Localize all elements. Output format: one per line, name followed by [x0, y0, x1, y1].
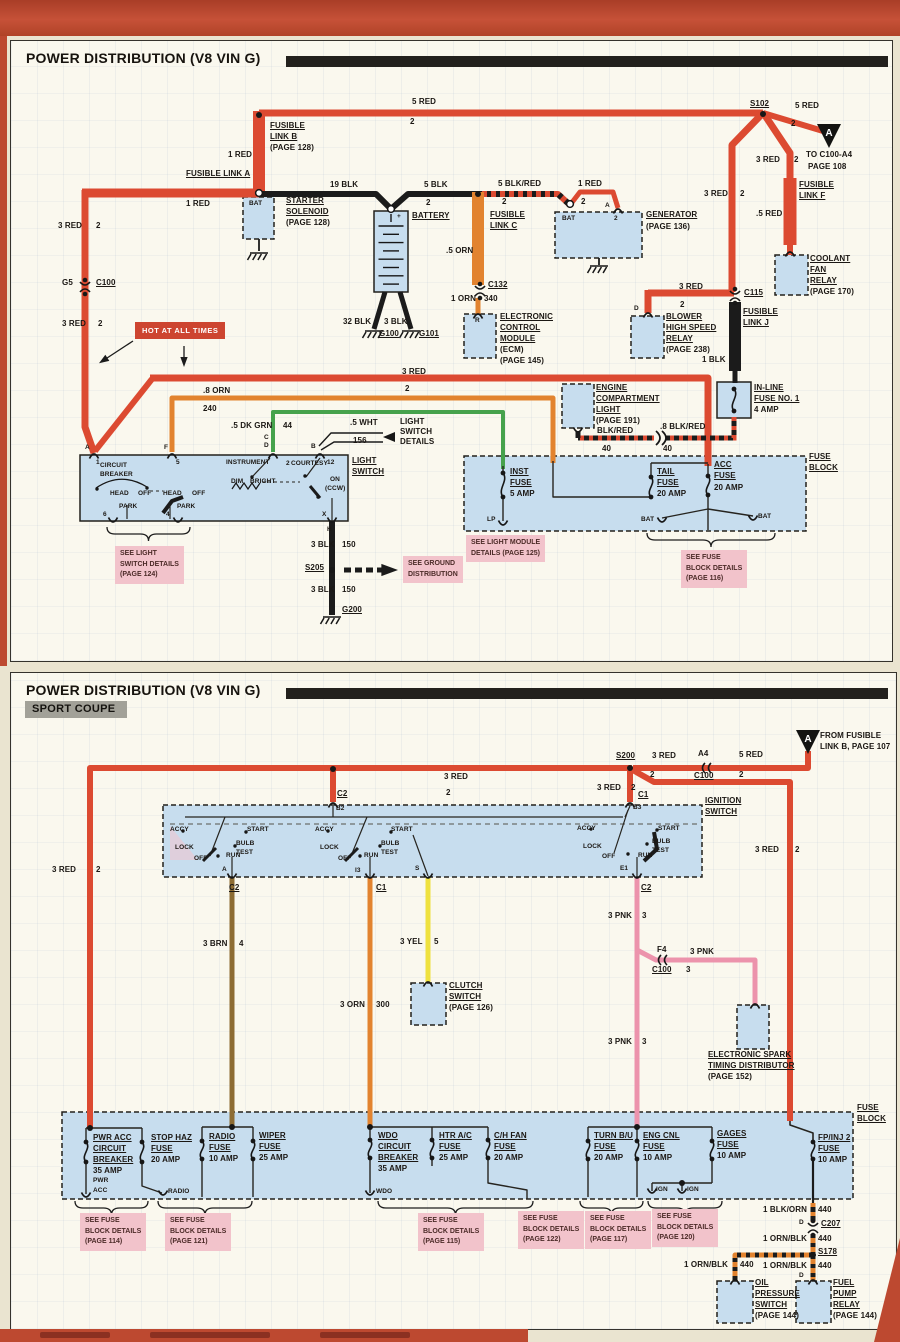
label-3-brn: 3 BRN — [203, 940, 228, 948]
wire-1red-gen — [570, 192, 618, 208]
label-fuse: FUSE — [439, 1143, 461, 1151]
label-3-orn: 3 ORN — [340, 1001, 365, 1009]
junction-dot — [760, 111, 766, 117]
label-fuel: FUEL — [833, 1279, 854, 1287]
label-5-orn: .5 ORN — [446, 247, 473, 255]
label-8-orn: .8 ORN — [203, 387, 230, 395]
label-440: 440 — [818, 1262, 832, 1270]
label-switch: SWITCH — [400, 428, 432, 436]
label-bat: BAT — [562, 216, 575, 223]
connector-symbol — [808, 1219, 818, 1238]
label-3-red: 3 RED — [62, 320, 86, 328]
label-electronic-spark: ELECTRONIC SPARK — [708, 1051, 791, 1059]
label-oil: OIL — [755, 1279, 769, 1287]
label-start: START — [247, 827, 269, 834]
label-breaker: BREAKER — [93, 1156, 133, 1164]
hot-arrow-1 — [104, 341, 133, 360]
label-htr-a-c: HTR A/C — [439, 1132, 472, 1140]
label-1-red: 1 RED — [578, 180, 602, 188]
junction-dot — [679, 1180, 685, 1186]
label-c132: C132 — [488, 281, 508, 289]
label-d: D — [264, 443, 269, 450]
label-relay: RELAY — [833, 1301, 860, 1309]
label-c1: C1 — [638, 791, 648, 799]
wire-left-3red — [85, 190, 94, 453]
note-fb2-115-line: BLOCK DETAILS — [423, 1227, 479, 1238]
label-fusible: FUSIBLE — [270, 122, 305, 130]
label-2: 2 — [581, 198, 586, 206]
flag-connector: A — [817, 124, 841, 148]
label-breaker: BREAKER — [100, 472, 133, 479]
label-bright: BRIGHT — [250, 479, 276, 486]
label-accy: ACCY — [170, 827, 189, 834]
label-3-blk: 3 BLK — [384, 318, 408, 326]
note-light-module-details: SEE LIGHT MODULEDETAILS (PAGE 125) — [466, 535, 545, 562]
label-25-amp: 25 AMP — [259, 1154, 288, 1162]
wire-5wht-b — [321, 442, 383, 450]
brace-fuse-block-1 — [647, 533, 775, 547]
label-fusible: FUSIBLE — [743, 308, 778, 316]
label-x: X — [322, 512, 326, 519]
label-instrument: INSTRUMENT — [226, 460, 270, 467]
hot-arrow-2-arrowhead — [180, 357, 187, 367]
label-blower: BLOWER — [666, 313, 702, 321]
note-light-switch-details-line: (PAGE 124) — [120, 570, 179, 581]
label-s205: S205 — [305, 564, 324, 572]
p2-pnk-branch — [637, 950, 755, 1005]
wire-5wht-a — [319, 433, 383, 446]
label-c207: C207 — [821, 1220, 841, 1228]
contact-dot — [358, 854, 361, 857]
label-eng-cnl: ENG CNL — [643, 1132, 680, 1140]
label-3-red: 3 RED — [402, 368, 426, 376]
label-lock: LOCK — [583, 844, 602, 851]
label-2: 2 — [98, 320, 103, 328]
label-a: A — [85, 445, 90, 452]
label-turn-b-u: TURN B/U — [594, 1132, 633, 1140]
label-35-amp: 35 AMP — [93, 1167, 122, 1175]
label-3-pnk: 3 PNK — [608, 1038, 632, 1046]
label-lock: LOCK — [175, 845, 194, 852]
label-fan: FAN — [810, 266, 826, 274]
label-tail: TAIL — [657, 468, 675, 476]
label-bulb: BULB — [381, 841, 399, 848]
label-19-blk: 19 BLK — [330, 181, 358, 189]
label-block: BLOCK — [857, 1115, 886, 1123]
label-ignition: IGNITION — [705, 797, 741, 805]
wire-5blk — [391, 194, 478, 209]
label-pwr-acc: PWR ACC — [93, 1134, 132, 1142]
label-20-amp: 20 AMP — [594, 1154, 623, 1162]
label-d: D — [799, 1220, 804, 1227]
label-control: CONTROL — [500, 324, 540, 332]
label-4: 4 — [239, 940, 244, 948]
label-2: 2 — [502, 198, 507, 206]
detail-arrow — [383, 432, 395, 442]
note-light-switch-details-line: SEE LIGHT — [120, 549, 179, 560]
label-fuse: FUSE — [151, 1145, 173, 1153]
label-details: DETAILS — [400, 438, 434, 446]
page-edge-bottom — [0, 1329, 528, 1342]
label-2: 2 — [680, 301, 685, 309]
label-3-red: 3 RED — [52, 866, 76, 874]
clutch-switch-box — [411, 983, 446, 1025]
label-page-170: (PAGE 170) — [810, 288, 854, 296]
page-edge-top — [0, 0, 900, 36]
note-light-switch-details: SEE LIGHTSWITCH DETAILS(PAGE 124) — [115, 546, 184, 584]
label-off: OFF — [138, 491, 151, 498]
label-fp-inj-2: FP/INJ 2 — [818, 1134, 850, 1142]
title-bar-bottom — [286, 688, 888, 699]
label-page-128: (PAGE 128) — [286, 219, 330, 227]
sport-coupe-badge: SPORT COUPE — [25, 701, 127, 718]
label-300: 300 — [376, 1001, 390, 1009]
label-240: 240 — [203, 405, 217, 413]
label-10-amp: 10 AMP — [643, 1154, 672, 1162]
label-page-128: (PAGE 128) — [270, 144, 314, 152]
label-10-amp: 10 AMP — [209, 1155, 238, 1163]
label-wiper: WIPER — [259, 1132, 286, 1140]
label-1-blk: 1 BLK — [702, 356, 726, 364]
label-4-amp: 4 AMP — [754, 406, 779, 414]
label-coolant: COOLANT — [810, 255, 850, 263]
label-to-c100-a4: TO C100-A4 — [806, 151, 852, 159]
label-5: 5 — [434, 938, 439, 946]
label-pump: PUMP — [833, 1290, 857, 1298]
note-fb2-120: SEE FUSEBLOCK DETAILS(PAGE 120) — [652, 1209, 718, 1247]
brace-light-switch — [107, 527, 190, 541]
note-fuse-block-116-line: SEE FUSE — [686, 553, 742, 564]
note-fb2-122-line: (PAGE 122) — [523, 1235, 579, 1246]
label-20-amp: 20 AMP — [714, 484, 743, 492]
label-run: RUN — [638, 853, 652, 860]
note-light-module-details-line: DETAILS (PAGE 125) — [471, 549, 540, 560]
label-start: START — [391, 827, 413, 834]
note-fb2-114: SEE FUSEBLOCK DETAILS(PAGE 114) — [80, 1213, 146, 1251]
print-smudge — [320, 1332, 410, 1338]
label-page-144: (PAGE 144) — [755, 1312, 799, 1320]
label-3-red: 3 RED — [704, 190, 728, 198]
label-link-c: LINK C — [490, 222, 517, 230]
label-block: BLOCK — [809, 464, 838, 472]
label-c100: C100 — [694, 772, 714, 780]
svg-text:A: A — [825, 128, 832, 139]
label-clutch: CLUTCH — [449, 982, 482, 990]
label-light: LIGHT — [596, 406, 621, 414]
label-2: 2 — [791, 120, 796, 128]
junction-dot — [256, 112, 262, 118]
label-fuse: FUSE — [510, 479, 532, 487]
label-battery: BATTERY — [412, 212, 450, 220]
label-label: + — [397, 214, 401, 221]
label-fuse: FUSE — [594, 1143, 616, 1151]
note-fb2-115-line: (PAGE 115) — [423, 1237, 479, 1248]
label-ign: IGN — [656, 1187, 668, 1194]
label-bat: BAT — [249, 201, 262, 208]
junction-dot — [627, 765, 633, 771]
label-2: 2 — [614, 216, 618, 223]
title-bar-top — [286, 56, 888, 67]
label-breaker: BREAKER — [378, 1154, 418, 1162]
label-b2: B2 — [336, 806, 345, 813]
label-head: HEAD — [110, 491, 129, 498]
label-440: 440 — [740, 1261, 754, 1269]
label-6: 6 — [103, 512, 107, 519]
note-fb2-117: SEE FUSEBLOCK DETAILS(PAGE 117) — [585, 1211, 651, 1249]
label-5-amp: 5 AMP — [510, 490, 535, 498]
label-c-h-fan: C/H FAN — [494, 1132, 527, 1140]
esc-distributor-box — [737, 1005, 769, 1049]
label-switch: SWITCH — [705, 808, 737, 816]
note-fb2-120-line: SEE FUSE — [657, 1212, 713, 1223]
label-g100: G100 — [379, 330, 399, 338]
label-h: H — [327, 527, 332, 534]
label-fuse-no-1: FUSE NO. 1 — [754, 395, 799, 403]
label-c: C — [264, 435, 269, 442]
label-wdo: WDO — [376, 1189, 392, 1196]
label-acc: ACC — [93, 1188, 107, 1195]
label-on: ON — [330, 477, 340, 484]
label-3-red: 3 RED — [597, 784, 621, 792]
contact-dot — [626, 852, 629, 855]
label-fuse: FUSE — [643, 1143, 665, 1151]
label-340: 340 — [484, 295, 498, 303]
label-20-amp: 20 AMP — [657, 490, 686, 498]
label-c2: C2 — [229, 884, 239, 892]
label-relay: RELAY — [666, 335, 693, 343]
note-ground-distribution: SEE GROUNDDISTRIBUTION — [403, 556, 463, 583]
label-2: 2 — [410, 118, 415, 126]
label-link-b-page-107: LINK B, PAGE 107 — [820, 743, 890, 751]
label-f4: F4 — [657, 946, 667, 954]
label-wdo: WDO — [378, 1132, 398, 1140]
label-fuse: FUSE — [209, 1144, 231, 1152]
hot-arrow-1-arrowhead — [99, 355, 109, 364]
label-accy: ACCY — [577, 826, 596, 833]
label-dim: DIM — [231, 479, 243, 486]
label-4: 4 — [166, 512, 170, 519]
label-5-blk: 5 BLK — [424, 181, 448, 189]
label-lp: LP — [487, 517, 496, 524]
label-circuit: CIRCUIT — [100, 463, 127, 470]
label-page-136: (PAGE 136) — [646, 223, 690, 231]
label-light: LIGHT — [400, 418, 425, 426]
label-link-b: LINK B — [270, 133, 297, 141]
label-b: B — [311, 444, 316, 451]
label-f: F — [164, 445, 168, 452]
label-electronic: ELECTRONIC — [500, 313, 553, 321]
label-test: TEST — [236, 850, 253, 857]
label-g101: G101 — [419, 330, 439, 338]
coolant-relay-box — [775, 255, 808, 295]
label-gages: GAGES — [717, 1130, 746, 1138]
label-3-red: 3 RED — [58, 222, 82, 230]
wire-s102-right — [764, 114, 790, 180]
label-3-red: 3 RED — [679, 283, 703, 291]
label-12: 12 — [327, 460, 334, 467]
label-c115: C115 — [744, 289, 763, 297]
label-page-144: (PAGE 144) — [833, 1312, 877, 1320]
flag-connector: A — [796, 730, 820, 754]
label-440: 440 — [818, 1235, 832, 1243]
label-3-blk: 3 BLK — [311, 541, 335, 549]
label-d: D — [634, 306, 639, 313]
label-c100: C100 — [652, 966, 672, 974]
note-fb2-114-line: BLOCK DETAILS — [85, 1227, 141, 1238]
terminal-ring — [567, 201, 574, 208]
label-bat: BAT — [641, 517, 654, 524]
wire-8orn — [172, 398, 553, 463]
label-5-red: 5 RED — [739, 751, 763, 759]
label-in-line: IN-LINE — [754, 384, 784, 392]
note-fb2-120-line: (PAGE 120) — [657, 1233, 713, 1244]
label-5-blk-red: 5 BLK/RED — [498, 180, 541, 188]
label-bulb: BULB — [236, 841, 254, 848]
label-fuse: FUSE — [717, 1141, 739, 1149]
ground-dist-arrow-arrowhead — [381, 564, 398, 576]
label-off: OFF — [194, 856, 207, 863]
label-compartment: COMPARTMENT — [596, 395, 660, 403]
label-1-orn-blk: 1 ORN/BLK — [763, 1262, 807, 1270]
label-relay: RELAY — [810, 277, 837, 285]
label-5-red: 5 RED — [412, 98, 436, 106]
label-fuse: FUSE — [809, 453, 831, 461]
label-3: 3 — [642, 1038, 647, 1046]
label-c2: C2 — [337, 790, 347, 798]
label-page-152: (PAGE 152) — [708, 1073, 752, 1081]
note-fb2-122-line: BLOCK DETAILS — [523, 1225, 579, 1236]
label-bat: BAT — [758, 514, 771, 521]
wiring-svg: AA — [0, 0, 900, 1342]
junction-dot — [87, 1125, 93, 1131]
label-fusible: FUSIBLE — [799, 181, 834, 189]
note-fuse-block-116: SEE FUSEBLOCK DETAILS(PAGE 116) — [681, 550, 747, 588]
label-courtesy: COURTESY — [291, 461, 328, 468]
label-2: 2 — [740, 190, 745, 198]
page-title-bottom: POWER DISTRIBUTION (V8 VIN G) — [26, 682, 260, 698]
label-park: PARK — [119, 504, 137, 511]
note-light-module-details-line: SEE LIGHT MODULE — [471, 538, 540, 549]
label-starter: STARTER — [286, 197, 324, 205]
label-3-red: 3 RED — [755, 846, 779, 854]
label-35-amp: 35 AMP — [378, 1165, 407, 1173]
label-switch: SWITCH — [449, 993, 481, 1001]
label-off: OFF — [192, 491, 205, 498]
label-3-pnk: 3 PNK — [690, 948, 714, 956]
label-fuse: FUSE — [494, 1143, 516, 1151]
label-5-red: .5 RED — [756, 210, 782, 218]
contact-dot — [216, 854, 219, 857]
label-20-amp: 20 AMP — [151, 1156, 180, 1164]
label-2: 2 — [286, 461, 290, 468]
label-s200: S200 — [616, 752, 635, 760]
label-ign: IGN — [687, 1187, 699, 1194]
ecm-box — [464, 314, 496, 358]
label-10-amp: 10 AMP — [818, 1156, 847, 1164]
label-3-yel: 3 YEL — [400, 938, 423, 946]
contact-dot — [645, 842, 648, 845]
label-25-amp: 25 AMP — [439, 1154, 468, 1162]
label-module: MODULE — [500, 335, 535, 343]
label-40: 40 — [602, 445, 611, 453]
label-r: R — [475, 318, 480, 325]
terminal-ring — [388, 206, 395, 213]
label-blk-red: BLK/RED — [597, 427, 633, 435]
label-page-126: (PAGE 126) — [449, 1004, 493, 1012]
label-8-blk-red: .8 BLK/RED — [660, 423, 705, 431]
label-accy: ACCY — [315, 827, 334, 834]
label-ecm: (ECM) — [500, 346, 524, 354]
label-1-orn-blk: 1 ORN/BLK — [763, 1235, 807, 1243]
label-off: OFF — [602, 854, 615, 861]
note-ground-distribution-line: SEE GROUND — [408, 559, 458, 570]
label-start: START — [658, 826, 680, 833]
label-high-speed: HIGH SPEED — [666, 324, 716, 332]
wire-s102-left — [732, 114, 762, 292]
note-fb2-117-line: SEE FUSE — [590, 1214, 646, 1225]
label-radio: RADIO — [168, 1189, 189, 1196]
label-g200: G200 — [342, 606, 362, 614]
label-fuse: FUSE — [259, 1143, 281, 1151]
label-2: 2 — [96, 222, 101, 230]
note-fb2-115: SEE FUSEBLOCK DETAILS(PAGE 115) — [418, 1213, 484, 1251]
label-run: RUN — [364, 853, 378, 860]
label-2: 2 — [446, 789, 451, 797]
label-c2: C2 — [641, 884, 651, 892]
label-150: 150 — [342, 586, 356, 594]
label-3: 3 — [686, 966, 691, 974]
note-fb2-122: SEE FUSEBLOCK DETAILS(PAGE 122) — [518, 1211, 584, 1249]
junction-dot — [475, 191, 481, 197]
hot-at-all-times-badge: HOT AT ALL TIMES — [135, 322, 225, 339]
label-inst: INST — [510, 468, 529, 476]
label-off: OFF — [338, 856, 351, 863]
print-smudge — [40, 1332, 110, 1338]
label-3-pnk: 3 PNK — [608, 912, 632, 920]
contact-dot — [316, 495, 319, 498]
label-i3: I3 — [355, 868, 361, 875]
label-acc: ACC — [714, 461, 732, 469]
label-fusible-link-a: FUSIBLE LINK A — [186, 170, 250, 178]
label-2: 2 — [794, 156, 799, 164]
label-32-blk: 32 BLK — [343, 318, 371, 326]
label-s178: S178 — [818, 1248, 837, 1256]
label-1-red: 1 RED — [228, 151, 252, 159]
label-switch: SWITCH — [755, 1301, 787, 1309]
junction-dot — [367, 1124, 373, 1130]
label-pwr: PWR — [93, 1178, 108, 1185]
label-page-191: (PAGE 191) — [596, 417, 640, 425]
label-2: 2 — [650, 771, 655, 779]
label-circuit: CIRCUIT — [378, 1143, 411, 1151]
label-radio: RADIO — [209, 1133, 235, 1141]
fuel-pump-box — [796, 1281, 831, 1323]
label-150: 150 — [342, 541, 356, 549]
label-g5: G5 — [62, 279, 73, 287]
label-3-red: 3 RED — [652, 752, 676, 760]
label-b3: B3 — [633, 805, 642, 812]
junction-dot — [634, 1124, 640, 1130]
label-2: 2 — [405, 385, 410, 393]
label-3-red: 3 RED — [444, 773, 468, 781]
note-fuse-block-116-line: (PAGE 116) — [686, 574, 742, 585]
print-smudge — [150, 1332, 270, 1338]
label-switch: SWITCH — [352, 468, 384, 476]
label-a4: A4 — [698, 750, 708, 758]
label-2: 2 — [739, 771, 744, 779]
oil-pressure-box — [717, 1281, 753, 1323]
label-2: 2 — [631, 784, 636, 792]
